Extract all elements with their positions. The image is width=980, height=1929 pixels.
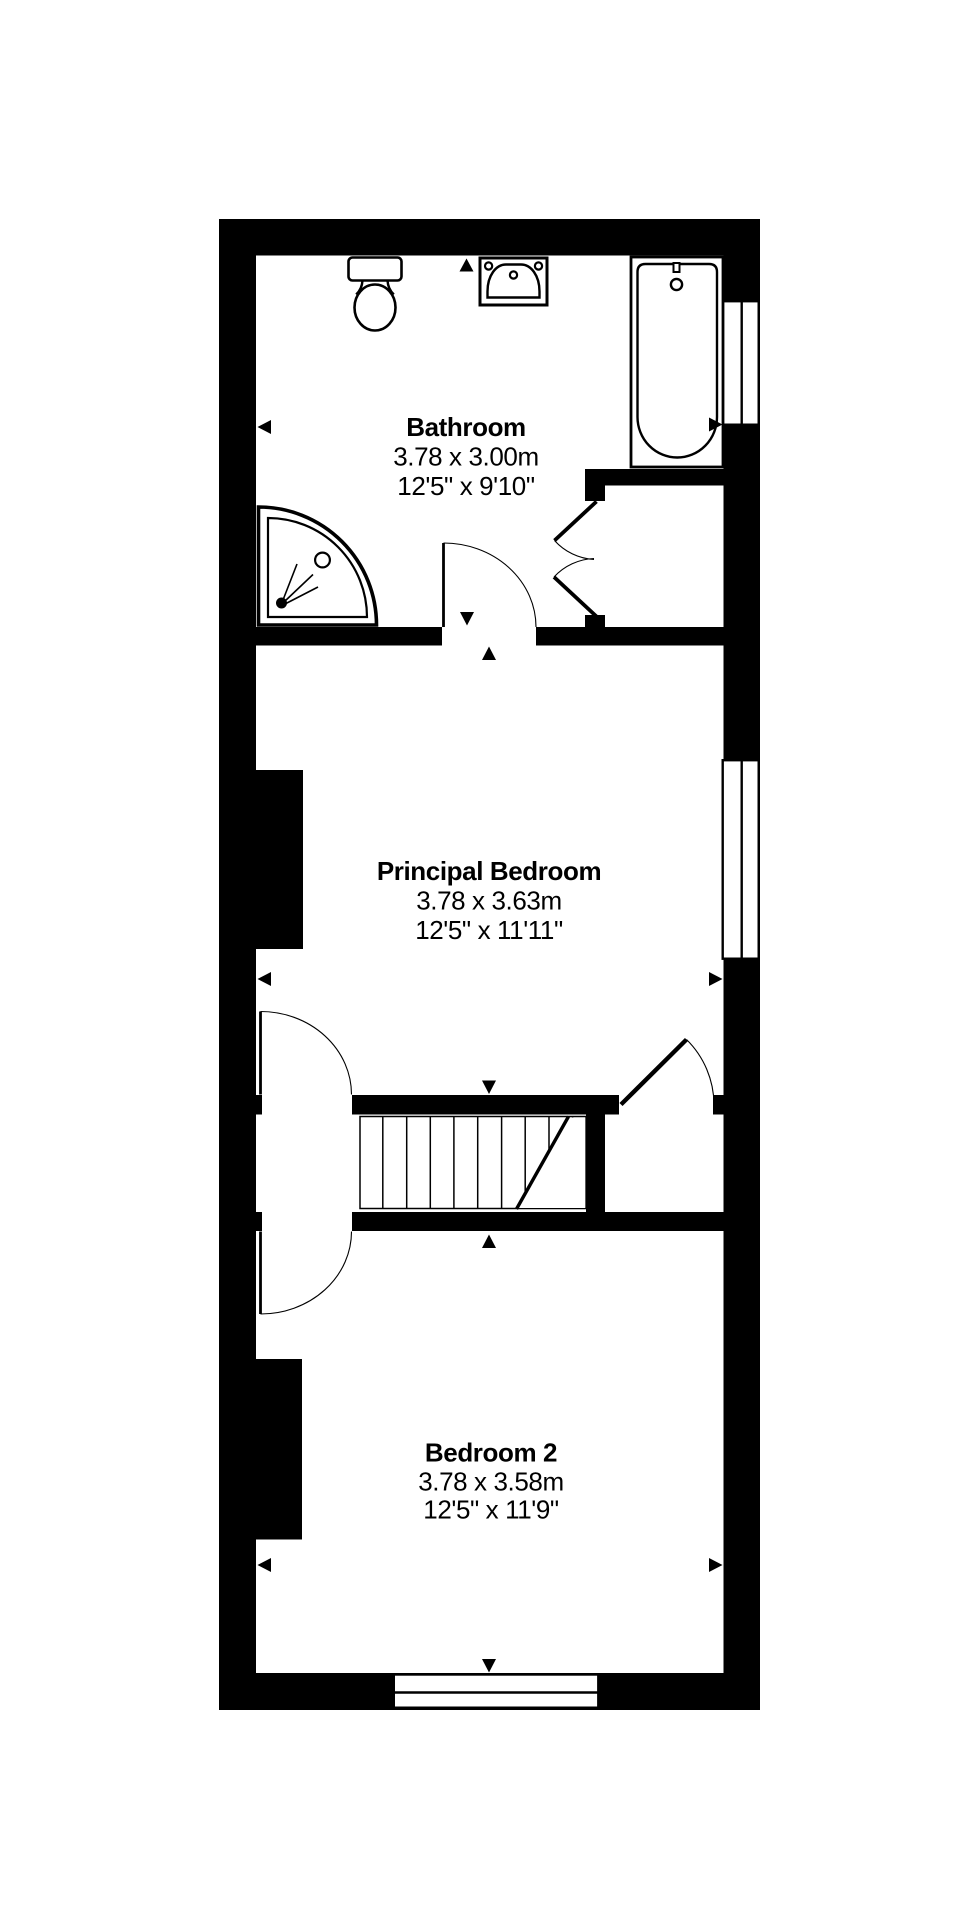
svg-text:12'5" x 11'9": 12'5" x 11'9" xyxy=(423,1495,559,1525)
svg-text:3.78 x 3.00m: 3.78 x 3.00m xyxy=(393,442,539,472)
svg-text:Bedroom 2: Bedroom 2 xyxy=(425,1438,557,1468)
svg-text:12'5" x 9'10": 12'5" x 9'10" xyxy=(397,471,535,501)
svg-text:Principal Bedroom: Principal Bedroom xyxy=(377,856,601,886)
svg-text:12'5" x 11'11": 12'5" x 11'11" xyxy=(415,915,563,945)
svg-text:3.78 x 3.58m: 3.78 x 3.58m xyxy=(418,1467,564,1497)
svg-text:Bathroom: Bathroom xyxy=(406,412,526,442)
svg-text:3.78 x 3.63m: 3.78 x 3.63m xyxy=(416,886,562,916)
